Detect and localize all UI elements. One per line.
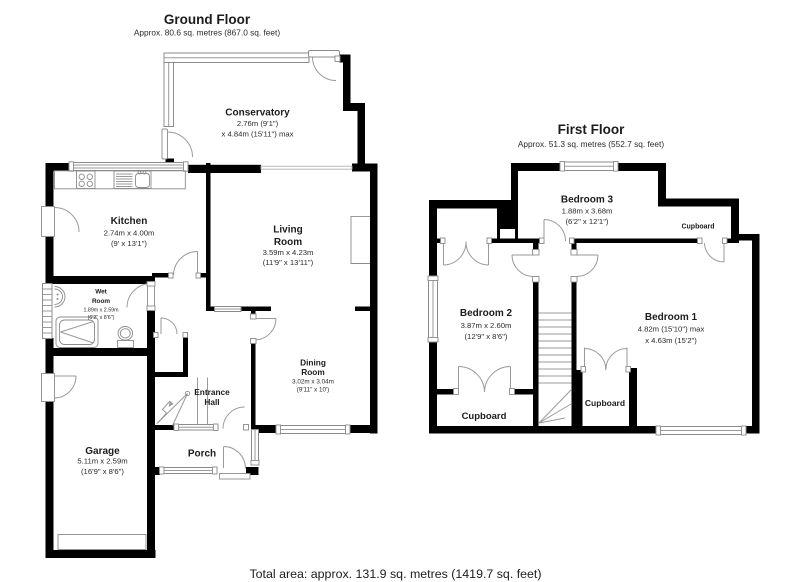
svg-text:(11'9" x 13'11"): (11'9" x 13'11") xyxy=(263,258,314,267)
svg-text:(9'11" x 10'): (9'11" x 10') xyxy=(297,387,330,394)
svg-text:Approx. 80.6 sq. metres (867.0: Approx. 80.6 sq. metres (867.0 sq. feet) xyxy=(134,28,280,38)
svg-text:Hall: Hall xyxy=(204,397,219,407)
svg-text:Approx. 51.3 sq. metres (552.7: Approx. 51.3 sq. metres (552.7 sq. feet) xyxy=(518,139,664,149)
svg-text:Wet: Wet xyxy=(95,289,107,296)
svg-text:Room: Room xyxy=(274,237,302,248)
svg-text:1.89m x 2.59m: 1.89m x 2.59m xyxy=(83,308,119,314)
svg-text:(12'9" x 8'6"): (12'9" x 8'6") xyxy=(464,332,507,341)
svg-text:Cupboard: Cupboard xyxy=(462,411,507,422)
svg-text:5.11m x 2.59m: 5.11m x 2.59m xyxy=(77,457,127,466)
svg-text:(6'2" x 8'6"): (6'2" x 8'6") xyxy=(88,315,115,321)
svg-text:3.59m x 4.23m: 3.59m x 4.23m xyxy=(263,248,314,257)
svg-text:Cupboard: Cupboard xyxy=(681,224,714,231)
svg-text:(6'2" x 12'1"): (6'2" x 12'1") xyxy=(565,217,608,226)
svg-text:(16'9" x 8'6"): (16'9" x 8'6") xyxy=(81,467,124,476)
svg-text:Ground Floor: Ground Floor xyxy=(164,12,251,27)
svg-text:Garage: Garage xyxy=(85,446,120,457)
svg-text:2.74m x 4.00m: 2.74m x 4.00m xyxy=(104,229,155,238)
svg-text:Bedroom 3: Bedroom 3 xyxy=(561,195,614,206)
svg-text:Entrance: Entrance xyxy=(194,387,230,397)
svg-text:Living: Living xyxy=(273,225,302,236)
svg-text:3.02m x 3.04m: 3.02m x 3.04m xyxy=(292,378,334,385)
svg-text:4.82m (15'10") max: 4.82m (15'10") max xyxy=(638,325,705,334)
svg-text:Porch: Porch xyxy=(188,449,216,460)
svg-text:Room: Room xyxy=(301,367,325,377)
svg-text:(9' x 13'1"): (9' x 13'1") xyxy=(111,239,147,248)
svg-text:Cupboard: Cupboard xyxy=(585,398,625,408)
svg-text:3.87m x 2.60m: 3.87m x 2.60m xyxy=(461,321,512,330)
svg-text:2.76m (9'1"): 2.76m (9'1") xyxy=(237,119,279,128)
svg-text:1.88m x 3.68m: 1.88m x 3.68m xyxy=(562,207,613,216)
svg-text:Conservatory: Conservatory xyxy=(225,108,290,119)
svg-text:Bedroom 2: Bedroom 2 xyxy=(460,308,513,319)
svg-text:Bedroom 1: Bedroom 1 xyxy=(645,312,698,323)
svg-text:Kitchen: Kitchen xyxy=(111,216,148,227)
svg-text:First Floor: First Floor xyxy=(558,122,625,137)
svg-text:x 4.63m (15'2"): x 4.63m (15'2") xyxy=(645,336,697,345)
svg-text:x 4.84m (15'11") max: x 4.84m (15'11") max xyxy=(222,130,294,139)
svg-text:Room: Room xyxy=(92,298,110,305)
svg-text:Total area: approx. 131.9 sq.: Total area: approx. 131.9 sq. metres (14… xyxy=(249,567,541,581)
svg-text:Dining: Dining xyxy=(300,358,326,368)
